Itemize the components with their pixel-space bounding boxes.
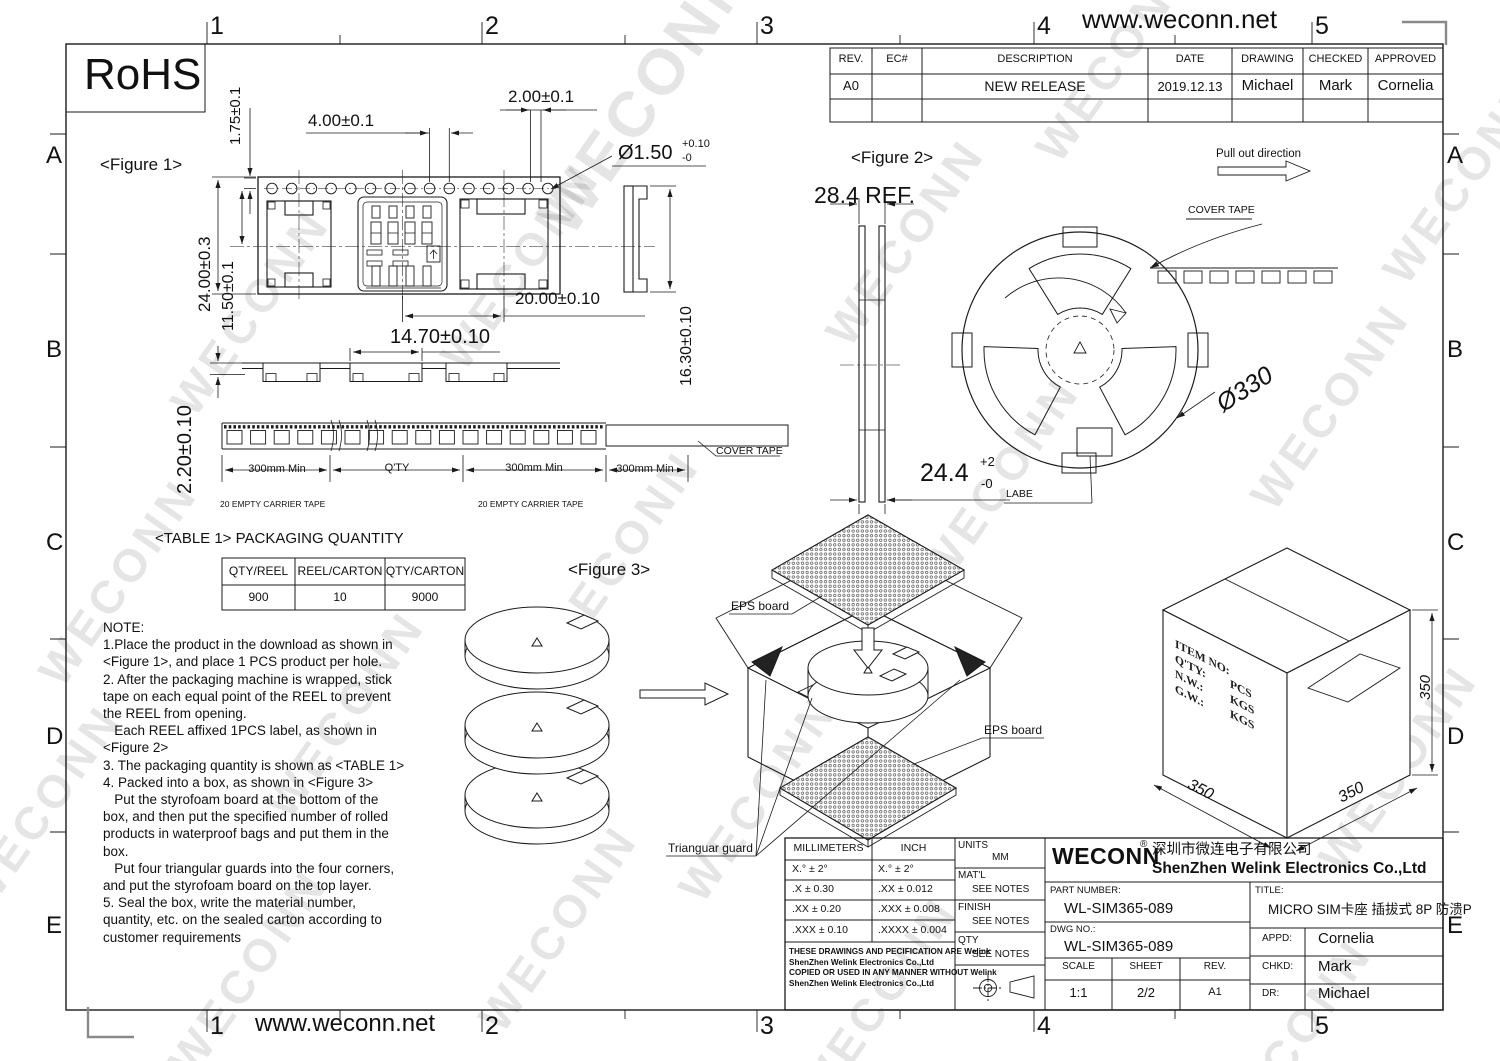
figure2-art	[830, 161, 1338, 514]
chkd-value: Mark	[1318, 959, 1351, 975]
seg-300-1: 300mm Min	[232, 464, 322, 476]
legal-line: ShenZhen Welink Electronics Co.,Ltd	[789, 979, 997, 990]
zone-row-d-left: D	[46, 724, 63, 749]
zone-row-a-left: A	[46, 143, 62, 168]
legal-line: ShenZhen Welink Electronics Co.,Ltd	[789, 958, 997, 969]
qty-label: QTY	[958, 936, 979, 947]
appd-label: APPD:	[1262, 934, 1292, 945]
figure3-art	[465, 515, 1044, 856]
tol-header-mm: MILLIMETERS	[785, 843, 872, 854]
registered-mark: ®	[1140, 840, 1147, 851]
legal-line: COPIED OR USED IN ANY MANNER WITHOUT Wel…	[789, 968, 997, 979]
dim-1-75: 1.75±0.1	[228, 87, 244, 145]
cover-tape-label-fig2: COVER TAPE	[1188, 205, 1255, 216]
tol-row: .XXX ± 0.10	[792, 925, 848, 936]
note-line: 4. Packed into a box, as shown in <Figur…	[103, 774, 455, 791]
approved-header: APPROVED	[1368, 54, 1443, 66]
dr-value: Michael	[1318, 986, 1370, 1002]
sheet-label: SHEET	[1112, 962, 1180, 973]
note-line: products in waterproof bags and put them…	[103, 825, 455, 842]
note-line: NOTE:	[103, 619, 455, 636]
checked-value: Mark	[1303, 78, 1368, 94]
dim-2-00: 2.00±0.1	[508, 88, 574, 106]
zone-col-5-top: 5	[1315, 13, 1329, 39]
figure3-label: <Figure 3>	[568, 561, 650, 579]
matl-value: SEE NOTES	[972, 885, 1029, 896]
zone-row-e-left: E	[46, 913, 62, 938]
zone-col-2-bottom: 2	[485, 1013, 499, 1039]
description-header: DESCRIPTION	[922, 54, 1148, 66]
date-value: 2019.12.13	[1148, 80, 1232, 94]
dim-hole-plus: +0.10	[682, 139, 710, 151]
eps-board-top-label: EPS board	[731, 600, 789, 613]
note-line: and put the styrofoam board on the top l…	[103, 877, 455, 894]
tol-row: .XX ± 0.012	[878, 884, 933, 895]
dwg-no-label: DWG NO.:	[1050, 925, 1095, 935]
dim-20-00: 20.00±0.10	[515, 290, 600, 308]
zone-row-b-right: B	[1447, 337, 1463, 362]
note-line: quantity, etc. on the sealed carton acco…	[103, 911, 455, 928]
reel-disc	[465, 607, 609, 689]
figure1-art	[210, 108, 788, 482]
note-line: box.	[103, 843, 455, 860]
url-bottom: www.weconn.net	[255, 1011, 435, 1036]
tol-row: .XXX ± 0.008	[878, 904, 940, 915]
qty-value: SEE NOTES	[972, 950, 1029, 961]
zone-col-5-bottom: 5	[1315, 1013, 1329, 1039]
tol-row: .XX ± 0.20	[792, 904, 841, 915]
note-line: 1.Place the product in the download as s…	[103, 636, 455, 653]
table1-value-qty-carton: 9000	[385, 591, 465, 604]
carton-art: ITEM NO: Q'TY: N.W.: G.W.: PCS KGS KGS	[1154, 548, 1438, 851]
note-line: 5. Seal the box, write the material numb…	[103, 894, 455, 911]
drawing-value: Michael	[1232, 78, 1303, 94]
empty-tape-left: 20 EMPTY CARRIER TAPE	[220, 500, 325, 509]
cover-tape-label-fig1: COVER TAPE	[716, 446, 783, 457]
eps-board-top	[772, 515, 964, 633]
rev-header: REV.	[830, 54, 872, 66]
table1-header-qty-carton: QTY/CARTON	[385, 565, 465, 578]
table1-value-qty-reel: 900	[222, 591, 295, 604]
description-value: NEW RELEASE	[922, 79, 1148, 94]
figure2-label: <Figure 2>	[851, 149, 933, 167]
part-number-label: PART NUMBER:	[1050, 886, 1121, 896]
note-line: customer requirements	[103, 929, 455, 946]
dim-hole-minus: -0	[682, 153, 692, 165]
note-line: Put four triangular guards into the four…	[103, 860, 455, 877]
tape-section	[210, 346, 560, 398]
zone-col-4-bottom: 4	[1037, 1013, 1051, 1039]
rohs-logo: RoHS	[84, 52, 201, 98]
tape-end-view	[624, 186, 647, 292]
zone-col-3-bottom: 3	[760, 1013, 774, 1039]
reel-disc	[465, 692, 609, 774]
figure1-label: <Figure 1>	[100, 156, 182, 174]
dwg-no-value: WL-SIM365-089	[1064, 939, 1173, 955]
note-line: tape on each equal point of the REEL to …	[103, 688, 455, 705]
dim-24-4-plus: +2	[980, 455, 995, 469]
table1-header-reel-carton: REEL/CARTON	[295, 565, 385, 578]
zone-row-c-right: C	[1447, 530, 1464, 555]
carton-dim-height: 350	[1418, 675, 1434, 700]
eps-board-bottom-label: EPS board	[984, 724, 1042, 737]
tol-row: .XXXX ± 0.004	[878, 925, 947, 936]
legal-line: THESE DRAWINGS AND PECIFICATION ARE Weli…	[789, 947, 997, 958]
dim-28-4: 28.4 REF.	[814, 183, 915, 207]
zone-col-4-top: 4	[1037, 13, 1051, 39]
units-value: MM	[992, 853, 1009, 864]
sheet-value: 2/2	[1112, 986, 1180, 1000]
company-name-cn: 深圳市微连电子有限公司	[1152, 843, 1312, 858]
note-line: <Figure 2>	[103, 739, 455, 756]
note-line: Put the styrofoam board at the bottom of…	[103, 791, 455, 808]
seg-300-2: 300mm Min	[489, 463, 579, 475]
company-name-en: ShenZhen Welink Electronics Co.,Ltd	[1152, 861, 1426, 877]
units-label: UNITS	[958, 841, 988, 852]
seg-300-3: 300mm Min	[602, 464, 688, 476]
drawing-header: DRAWING	[1232, 54, 1303, 66]
tol-header-inch: INCH	[872, 843, 955, 854]
dim-24-00: 24.00±0.3	[196, 236, 214, 312]
tol-row: X.° ± 2°	[878, 864, 914, 875]
rev-value-tb: A1	[1180, 987, 1250, 999]
tol-row: .X ± 0.30	[792, 884, 834, 895]
reel-label-tag: LABE	[1006, 489, 1033, 500]
ec-header: EC#	[872, 54, 922, 66]
notes-block: NOTE: 1.Place the product in the downloa…	[103, 619, 455, 946]
rev-value: A0	[830, 79, 872, 93]
checked-header: CHECKED	[1303, 54, 1368, 66]
pull-out-direction-label: Pull out direction	[1216, 148, 1301, 160]
dr-label: DR:	[1262, 989, 1279, 1000]
appd-value: Cornelia	[1318, 931, 1374, 947]
dim-14-70: 14.70±0.10	[390, 327, 490, 348]
dim-24-4: 24.4	[920, 460, 969, 486]
note-line: 2. After the packaging machine is wrappe…	[103, 671, 455, 688]
triangular-guard-label: Trianguar guard	[668, 842, 753, 855]
dim-16-30: 16.30±0.10	[679, 306, 696, 386]
dim-24-4-minus: -0	[981, 477, 993, 491]
matl-label: MAT'L	[958, 871, 986, 882]
zone-row-b-left: B	[46, 337, 62, 362]
seg-qty: Q'TY	[352, 463, 442, 475]
finish-value: SEE NOTES	[972, 917, 1029, 928]
table1-title: <TABLE 1> PACKAGING QUANTITY	[155, 531, 404, 547]
legal-text: THESE DRAWINGS AND PECIFICATION ARE Weli…	[789, 947, 997, 989]
sprocket-holes	[264, 183, 556, 194]
approved-value: Cornelia	[1368, 78, 1443, 94]
chkd-label: CHKD:	[1262, 962, 1293, 973]
zone-row-c-left: C	[46, 530, 63, 555]
note-line: box, and then put the specified number o…	[103, 808, 455, 825]
eps-board-bottom	[780, 737, 956, 847]
empty-tape-right: 20 EMPTY CARRIER TAPE	[478, 500, 583, 509]
tol-row: X.° ± 2°	[792, 864, 828, 875]
note-line: Each REEL affixed 1PCS label, as shown i…	[103, 722, 455, 739]
zone-col-1-bottom: 1	[210, 1013, 224, 1039]
dim-11-50: 11.50±0.1	[221, 261, 238, 331]
zone-row-a-right: A	[1447, 143, 1463, 168]
note-line: <Figure 1>, and place 1 PCS product per …	[103, 653, 455, 670]
url-top: www.weconn.net	[1082, 6, 1277, 33]
rev-label: REV.	[1180, 962, 1250, 973]
date-header: DATE	[1148, 54, 1232, 66]
zone-row-d-right: D	[1447, 724, 1464, 749]
dim-4-00: 4.00±0.1	[308, 112, 374, 130]
finish-label: FINISH	[958, 903, 991, 914]
drawing-sheet: WECONN WECONN WECONN WECONN WECONN WECON…	[0, 0, 1500, 1061]
scale-value: 1:1	[1045, 986, 1112, 1000]
table1-value-reel-carton: 10	[295, 591, 385, 604]
title-label: TITLE:	[1255, 886, 1284, 896]
note-line: 3. The packaging quantity is shown as <T…	[103, 757, 455, 774]
table1-header-qty-reel: QTY/REEL	[222, 565, 295, 578]
scale-label: SCALE	[1045, 962, 1112, 973]
title-value: MICRO SIM卡座 插拔式 8P 防溃P	[1268, 903, 1472, 917]
dim-2-20: 2.20±0.10	[175, 405, 196, 494]
note-line: the REEL from opening.	[103, 705, 455, 722]
zone-col-1-top: 1	[210, 13, 224, 39]
dim-hole-dia: Ø1.50	[618, 143, 672, 164]
zone-col-2-top: 2	[485, 13, 499, 39]
part-number-value: WL-SIM365-089	[1064, 901, 1173, 917]
zone-col-3-top: 3	[760, 13, 774, 39]
